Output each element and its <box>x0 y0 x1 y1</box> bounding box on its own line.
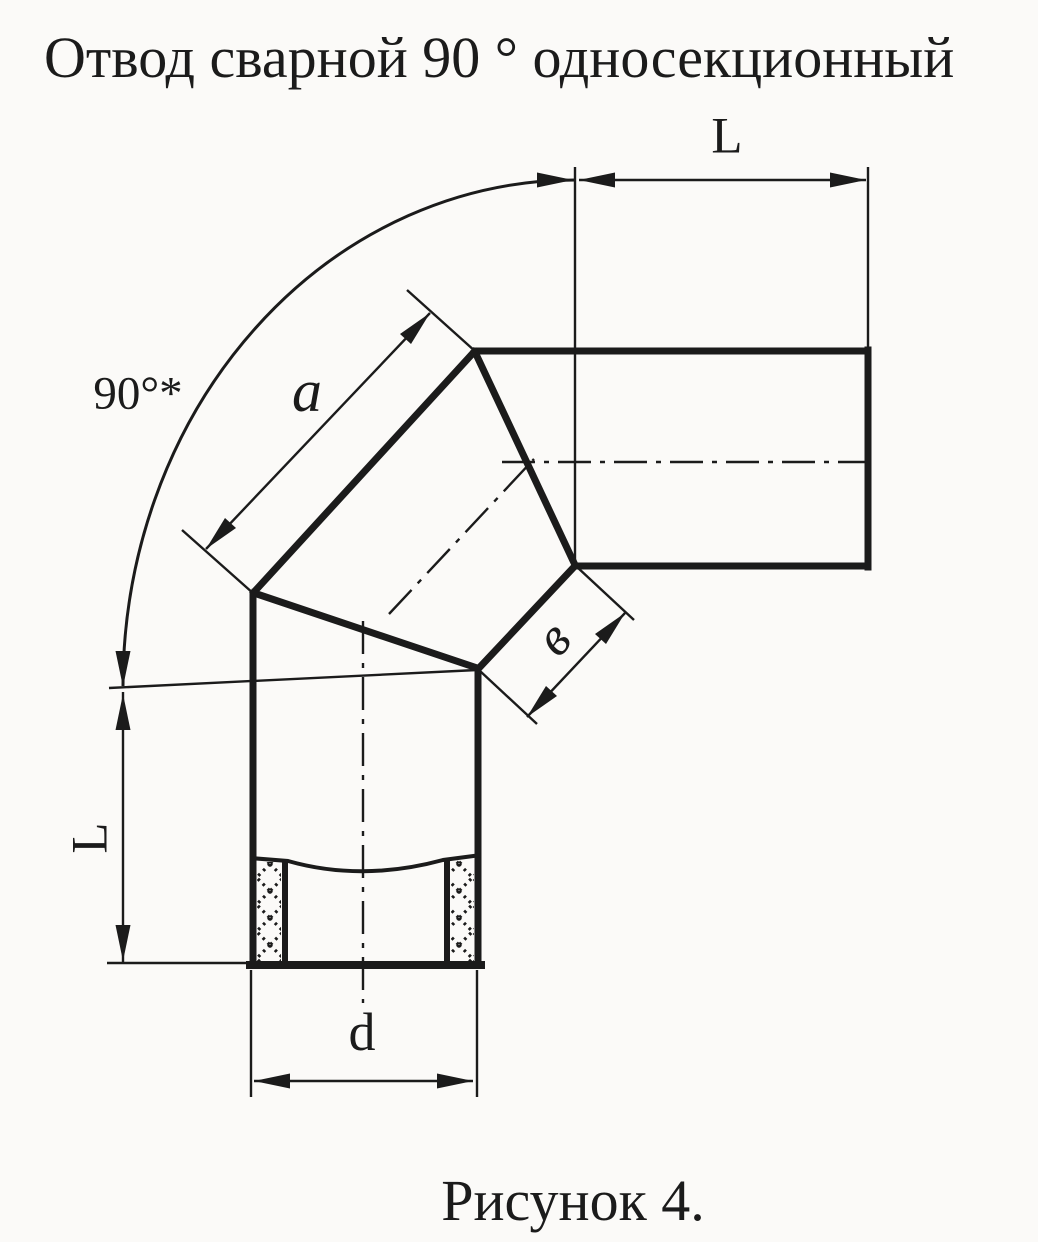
arrowhead <box>116 651 131 687</box>
arrowhead <box>116 925 131 961</box>
arrowhead <box>830 173 866 188</box>
centerline-miter-section <box>389 459 534 614</box>
miter-section-outer-edge <box>254 352 474 592</box>
dimension-label-d: d <box>349 1005 376 1059</box>
dimension-label-side-length: L <box>66 822 117 853</box>
extension-line <box>109 670 477 688</box>
arrowhead <box>437 1074 473 1089</box>
weld-seam-upper <box>475 352 575 565</box>
arrowhead <box>254 1074 290 1089</box>
dimension-lines <box>107 167 868 1097</box>
dimension-label-a: a <box>292 361 322 421</box>
centerlines <box>363 459 879 1003</box>
angle-arc-90 <box>123 180 575 686</box>
arrowheads <box>116 173 867 1089</box>
socket-detail <box>250 855 481 963</box>
extension-line <box>577 567 634 620</box>
elbow-diagram-linework <box>0 0 1038 1242</box>
arrowhead <box>579 173 615 188</box>
arrowhead <box>116 694 131 730</box>
extension-line <box>407 290 476 352</box>
hatch-band-right <box>451 860 474 962</box>
scanned-drawing-page: Отвод сварной 90 ° односекционный <box>0 0 1038 1242</box>
weld-seam-lower <box>254 593 477 668</box>
dimension-label-top-length: L <box>711 112 742 163</box>
arrowhead <box>537 173 573 188</box>
hatch-band-left <box>257 862 281 962</box>
hatch-bands <box>257 860 474 962</box>
figure-caption: Рисунок 4. <box>441 1172 705 1230</box>
dimension-label-angle: 90°* <box>93 371 182 418</box>
